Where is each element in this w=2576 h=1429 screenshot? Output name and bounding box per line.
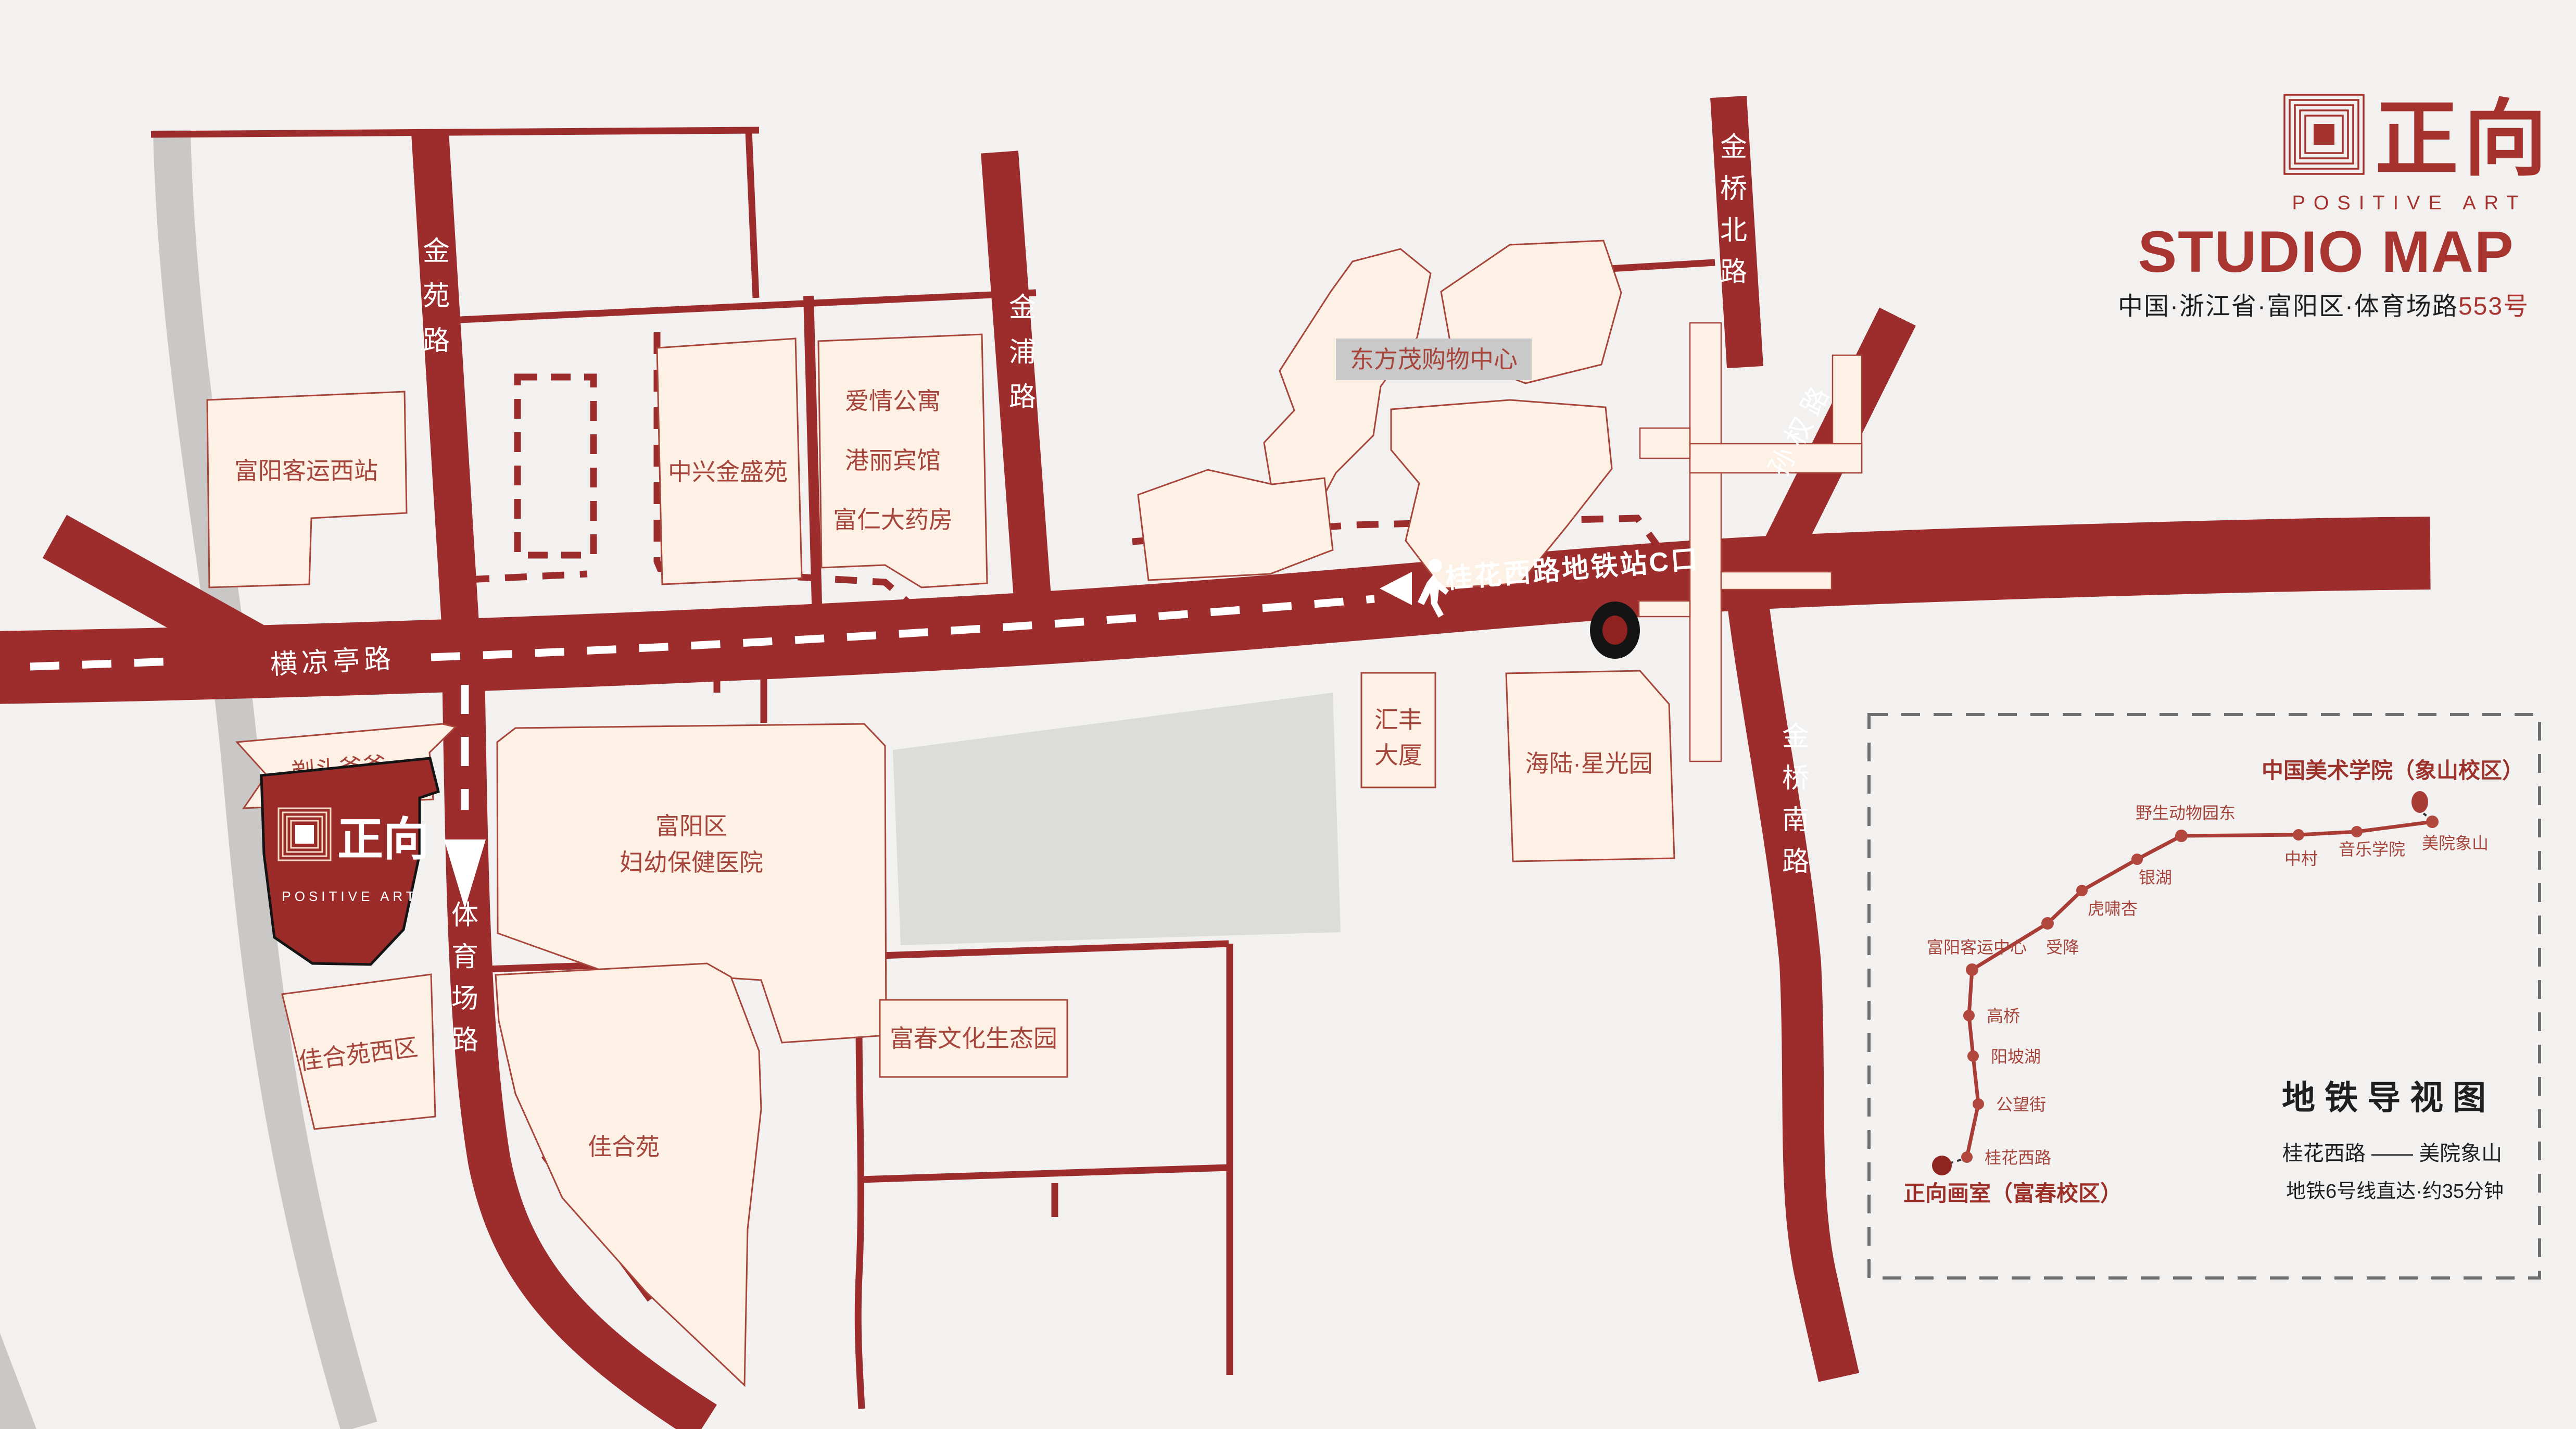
label-zhongxing: 中兴金盛苑 bbox=[668, 458, 788, 485]
studio-logo-cn: 正向 bbox=[337, 813, 429, 865]
label-fuchun-park: 富春文化生态园 bbox=[890, 1025, 1057, 1052]
station-label: 银湖 bbox=[2139, 868, 2172, 887]
metro-route: 桂花西路 —— 美院象山 bbox=[2282, 1142, 2502, 1165]
station-label: 虎啸杏 bbox=[2088, 899, 2138, 918]
station-label: 中村 bbox=[2284, 849, 2318, 868]
address-number: 553号 bbox=[2458, 293, 2529, 320]
road-label-jinyuan: 金苑路 bbox=[423, 236, 450, 356]
studio-map-canvas: 金苑路 金浦路 金桥北路 孙权路 金桥南路 体育场路 横凉亭路 桂花西路地铁站C… bbox=[0, 0, 2576, 1429]
station-label: 富阳客运中心 bbox=[1927, 938, 2027, 957]
metro-origin-dot bbox=[1932, 1156, 1952, 1175]
brand-logo-cn: 正向 bbox=[2375, 92, 2552, 185]
label-huifeng-2: 大厦 bbox=[1374, 742, 1422, 769]
label-hospital-2: 妇幼保健医院 bbox=[620, 849, 763, 876]
station-label: 公望街 bbox=[1996, 1095, 2046, 1114]
label-dongfangmao: 东方茂购物中心 bbox=[1350, 346, 1518, 373]
label-fuyang-west-station: 富阳客运西站 bbox=[234, 457, 378, 484]
metro-duration: 地铁6号线直达·约35分钟 bbox=[2286, 1181, 2504, 1202]
label-gangli: 港丽宾馆 bbox=[845, 447, 941, 474]
metro-terminus-dot bbox=[2411, 791, 2428, 813]
station-arm-left bbox=[1639, 601, 1690, 617]
page-title: STUDIO MAP bbox=[2138, 219, 2514, 284]
label-hospital-1: 富阳区 bbox=[655, 812, 727, 839]
center-dash-left bbox=[30, 661, 173, 667]
station-label: 桂花西路 bbox=[1985, 1148, 2051, 1167]
station-label: 美院象山 bbox=[2422, 834, 2489, 853]
exit-marker-inner bbox=[1602, 616, 1627, 645]
station-label: 受降 bbox=[2046, 938, 2079, 957]
label-huifeng-1: 汇丰 bbox=[1374, 706, 1422, 733]
address-line: 中国·浙江省·富阳区·体育场路553号 bbox=[2118, 293, 2529, 320]
station-label: 野生动物园东 bbox=[2136, 804, 2236, 822]
label-hailu: 海陆·星光园 bbox=[1525, 750, 1652, 777]
label-furen: 富仁大药房 bbox=[833, 506, 953, 533]
road-top-horizontal bbox=[151, 130, 759, 134]
label-jiaheyuan: 佳合苑 bbox=[588, 1133, 660, 1160]
metro-origin-label: 正向画室（富春校区） bbox=[1903, 1181, 2122, 1206]
station-arm-topleft bbox=[1640, 428, 1690, 458]
station-label: 高桥 bbox=[1987, 1007, 2020, 1025]
label-aiqing: 爱情公寓 bbox=[845, 387, 941, 415]
studio-logo-icon bbox=[279, 808, 331, 860]
brand-logo-en: POSITIVE ART bbox=[2292, 192, 2527, 214]
metro-exit-marker bbox=[1590, 601, 1640, 659]
station-bar-main bbox=[1690, 323, 1721, 761]
studio-logo-en: POSITIVE ART bbox=[282, 888, 418, 904]
station-label: 音乐学院 bbox=[2339, 840, 2405, 859]
station-label: 阳坡湖 bbox=[1991, 1047, 2041, 1066]
station-arm-right bbox=[1721, 572, 1832, 590]
metro-destination-title: 中国美术学院（象山校区） bbox=[2262, 758, 2524, 783]
metro-panel-title: 地铁导视图 bbox=[2282, 1079, 2495, 1117]
address-main: 中国·浙江省·富阳区·体育场路 bbox=[2118, 293, 2458, 320]
road-label-jinpu: 金浦路 bbox=[1009, 293, 1036, 412]
